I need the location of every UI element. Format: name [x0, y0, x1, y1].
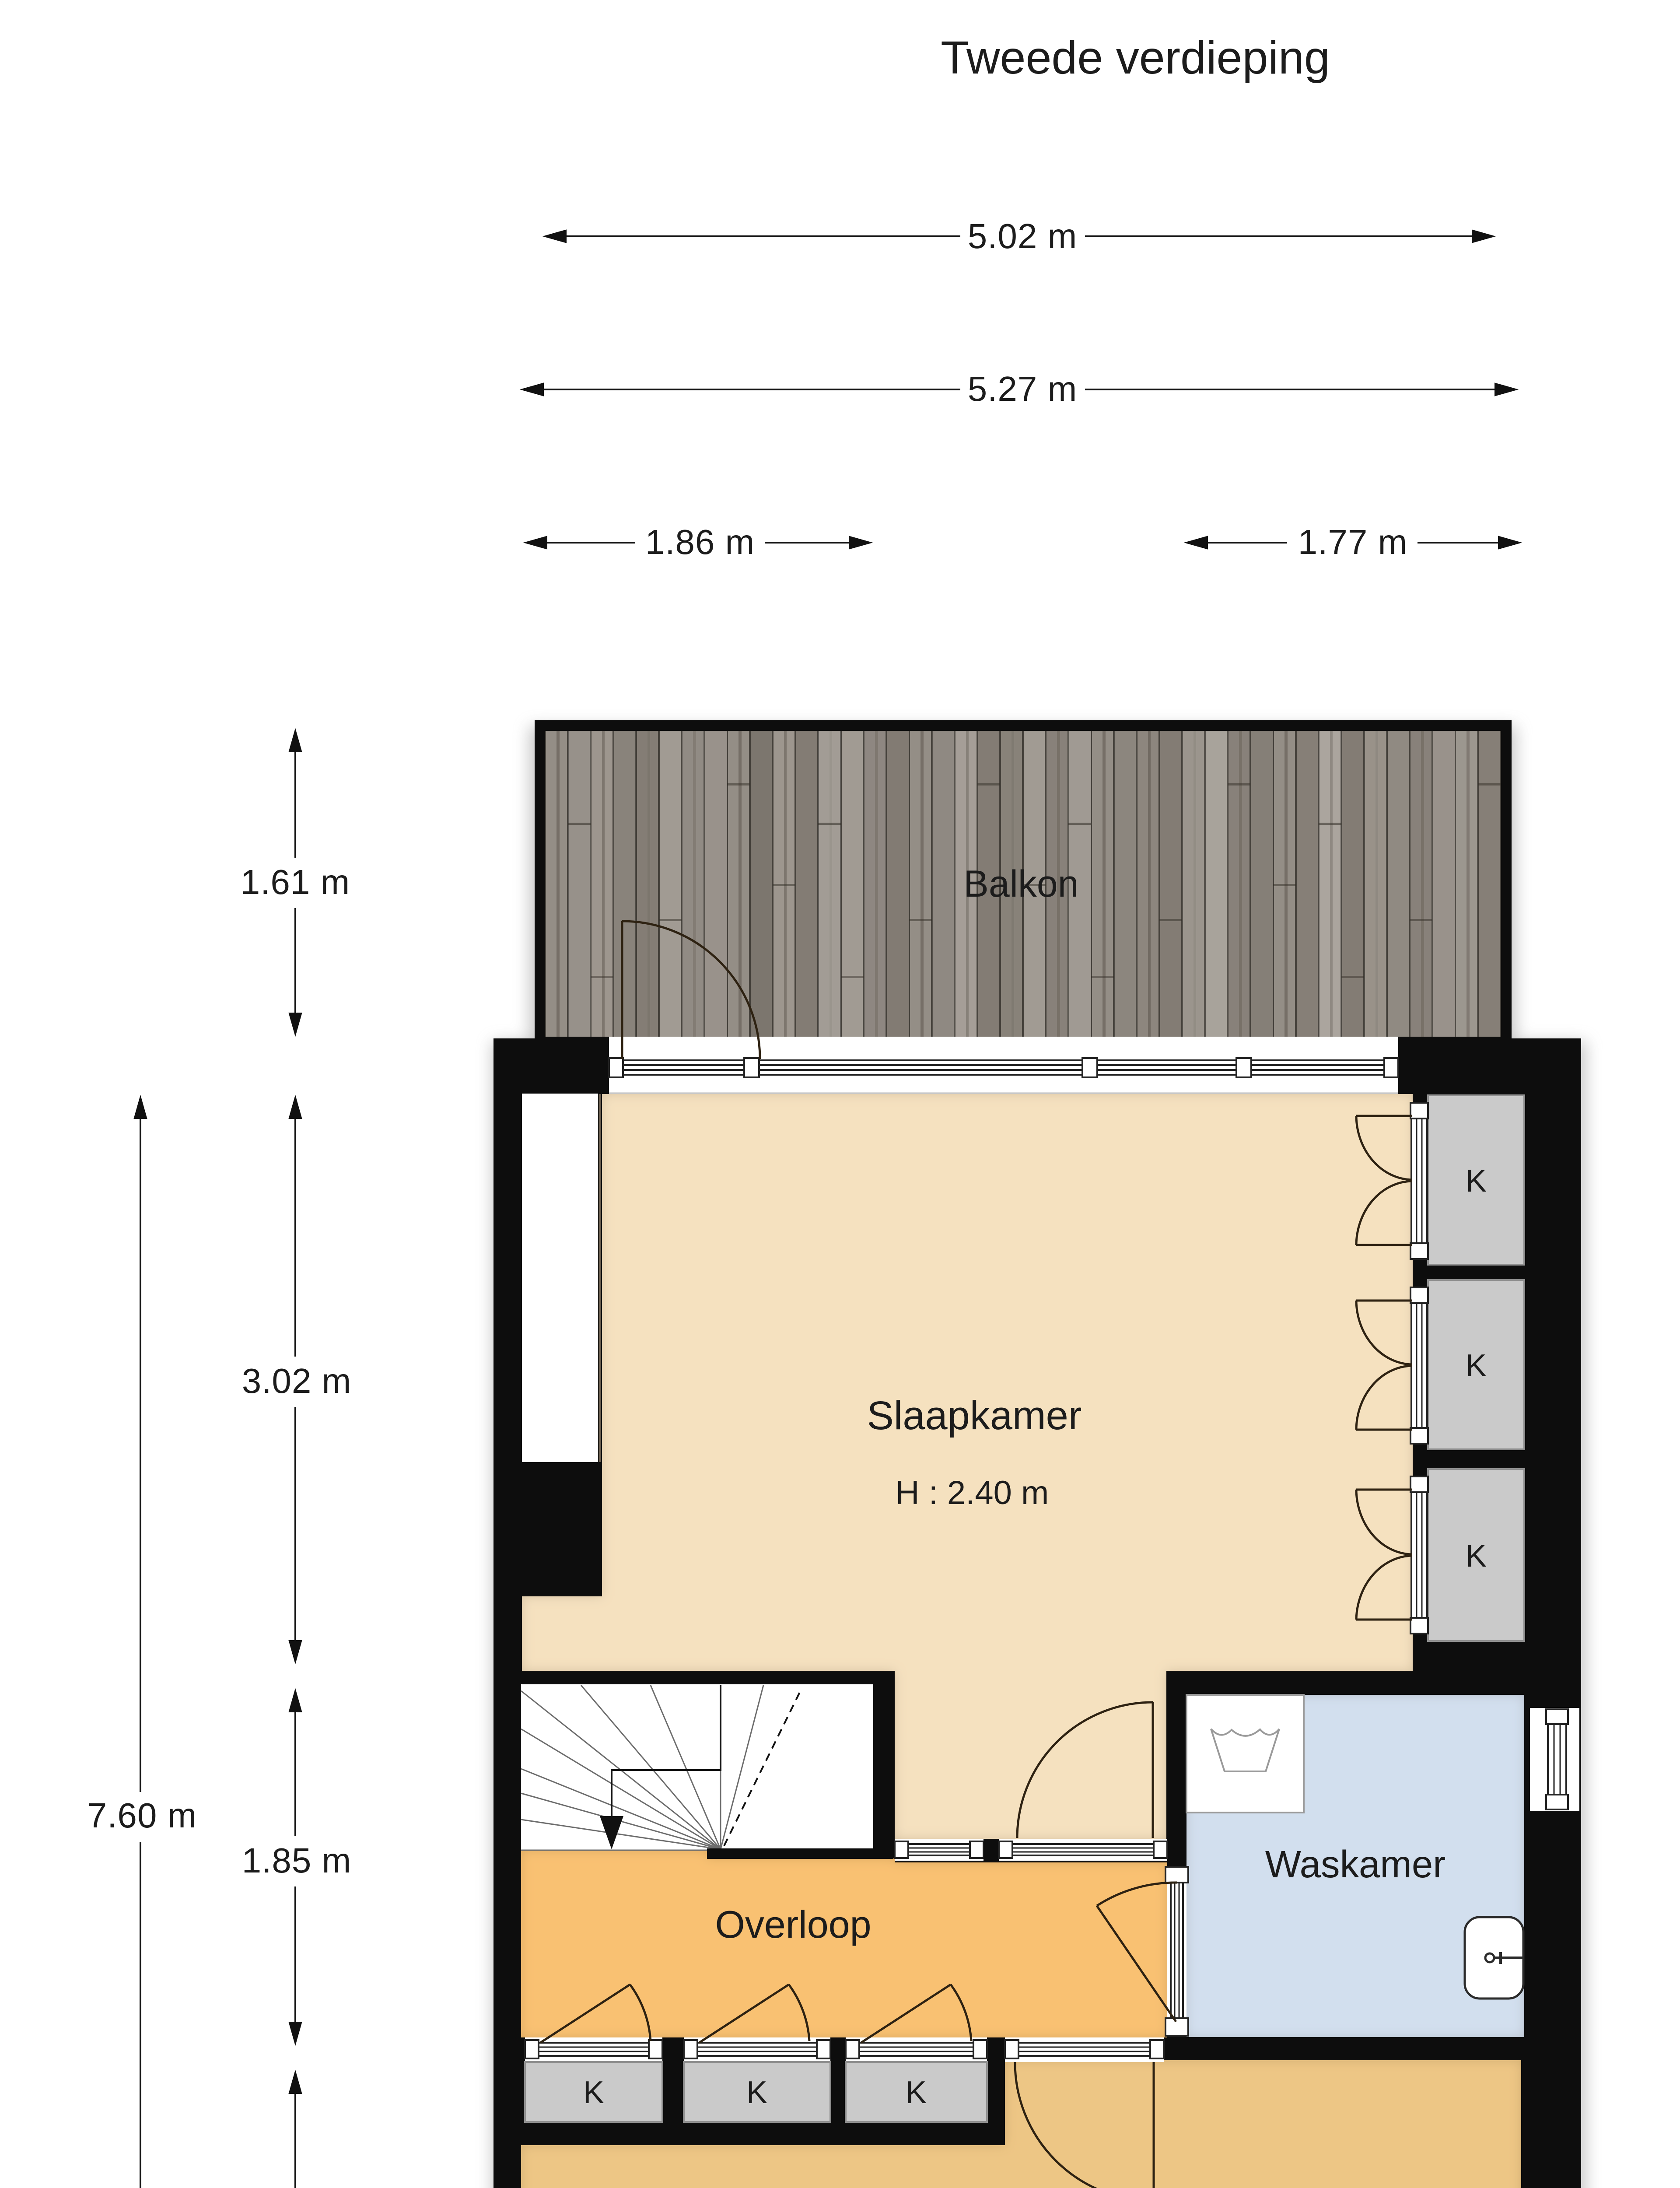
svg-text:H : 2.40 m: H : 2.40 m — [896, 1474, 1049, 1511]
svg-text:K: K — [906, 2075, 927, 2110]
svg-text:K: K — [583, 2075, 604, 2110]
svg-text:3.02 m: 3.02 m — [242, 1361, 352, 1400]
svg-text:1.86 m: 1.86 m — [645, 522, 755, 561]
svg-text:1.61 m: 1.61 m — [241, 863, 350, 901]
svg-text:K: K — [746, 2075, 767, 2110]
svg-text:K: K — [1466, 1348, 1487, 1383]
svg-text:K: K — [1466, 1164, 1487, 1199]
svg-text:Slaapkamer: Slaapkamer — [867, 1393, 1082, 1438]
svg-text:5.02 m: 5.02 m — [968, 217, 1078, 256]
svg-text:1.77 m: 1.77 m — [1298, 522, 1408, 561]
svg-text:Waskamer: Waskamer — [1265, 1843, 1446, 1886]
svg-text:Tweede verdieping: Tweede verdieping — [941, 32, 1330, 84]
svg-text:7.60 m: 7.60 m — [87, 1796, 197, 1835]
svg-text:5.27 m: 5.27 m — [968, 369, 1078, 408]
svg-text:K: K — [1466, 1539, 1487, 1574]
svg-text:Overloop: Overloop — [715, 1903, 871, 1946]
svg-text:Balkon: Balkon — [964, 863, 1079, 905]
svg-text:1.85 m: 1.85 m — [242, 1841, 352, 1880]
